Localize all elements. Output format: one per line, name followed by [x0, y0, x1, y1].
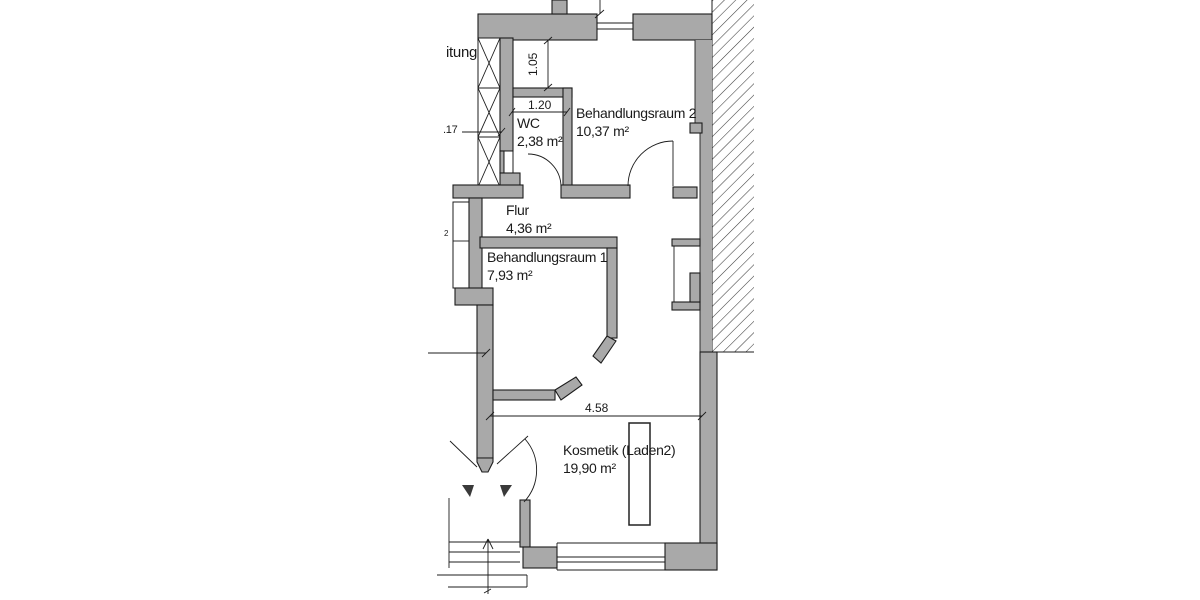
- room-label-flur: Flur 4,36 m²: [506, 201, 551, 237]
- dim-1-05: [544, 37, 552, 91]
- dim-label-2: 2: [444, 229, 448, 238]
- room-label-kosmetik: Kosmetik (Laden2) 19,90 m²: [563, 441, 675, 477]
- room-name-wc: WC: [517, 114, 562, 132]
- bottom-right-corner: [665, 543, 717, 570]
- shaft-crossed-boxes: [478, 38, 500, 187]
- dim-label-1-05: 1.05: [526, 53, 540, 76]
- b1-south-wall: [493, 377, 582, 400]
- room-name-behandlungsraum1: Behandlungsraum 1: [487, 248, 607, 266]
- partial-label-leitung: itung: [446, 44, 477, 61]
- room-name-kosmetik: Kosmetik (Laden2): [563, 441, 675, 459]
- wc-west-wall: [500, 38, 520, 187]
- wall-chamfer-tip: [477, 458, 493, 472]
- room-label-behandlungsraum2: Behandlungsraum 2 10,37 m²: [576, 104, 696, 140]
- wc-door-arc: [528, 154, 561, 187]
- dim-label-17: .17: [443, 124, 457, 136]
- top-wall-stub: [552, 0, 567, 14]
- entrance-door-arc: [524, 439, 537, 502]
- room-area-behandlungsraum2: 10,37 m²: [576, 122, 696, 140]
- b2-door-arc: [628, 141, 673, 186]
- room-name-flur: Flur: [506, 201, 551, 219]
- flur-b1-divider: [480, 237, 617, 248]
- floorplan-canvas: itung 1.05 1.20 .17 2 4.58 WC 2,38 m² Be…: [0, 0, 1200, 600]
- bottom-window: [557, 543, 665, 570]
- floorplan-drawing: [0, 0, 1200, 600]
- room-label-behandlungsraum1: Behandlungsraum 1 7,93 m²: [487, 248, 607, 284]
- wall-niche: [504, 151, 513, 173]
- door-marker-left: [462, 485, 474, 497]
- left-window: [453, 202, 469, 288]
- dim-label-4-58: 4.58: [585, 401, 608, 415]
- b2-door: [628, 141, 673, 186]
- room-name-behandlungsraum2: Behandlungsraum 2: [576, 104, 696, 122]
- room-label-wc: WC 2,38 m²: [517, 114, 562, 150]
- flur-north-wall: [453, 185, 697, 198]
- top-wall: [478, 0, 712, 40]
- right-wall-niche: [672, 239, 700, 310]
- staircase: [437, 498, 527, 594]
- room-area-kosmetik: 19,90 m²: [563, 459, 675, 477]
- bottom-left-wall-stub: [520, 500, 557, 568]
- wc-east-wall: [563, 88, 572, 187]
- room-area-behandlungsraum1: 7,93 m²: [487, 266, 607, 284]
- hatched-exterior-wall: [712, 0, 754, 352]
- door-marker-right: [500, 485, 512, 497]
- top-window: [597, 14, 633, 40]
- room-area-flur: 4,36 m²: [506, 219, 551, 237]
- stair-direction-arrow: [483, 539, 493, 594]
- dim-label-1-20: 1.20: [528, 98, 551, 112]
- room-area-wc: 2,38 m²: [517, 132, 562, 150]
